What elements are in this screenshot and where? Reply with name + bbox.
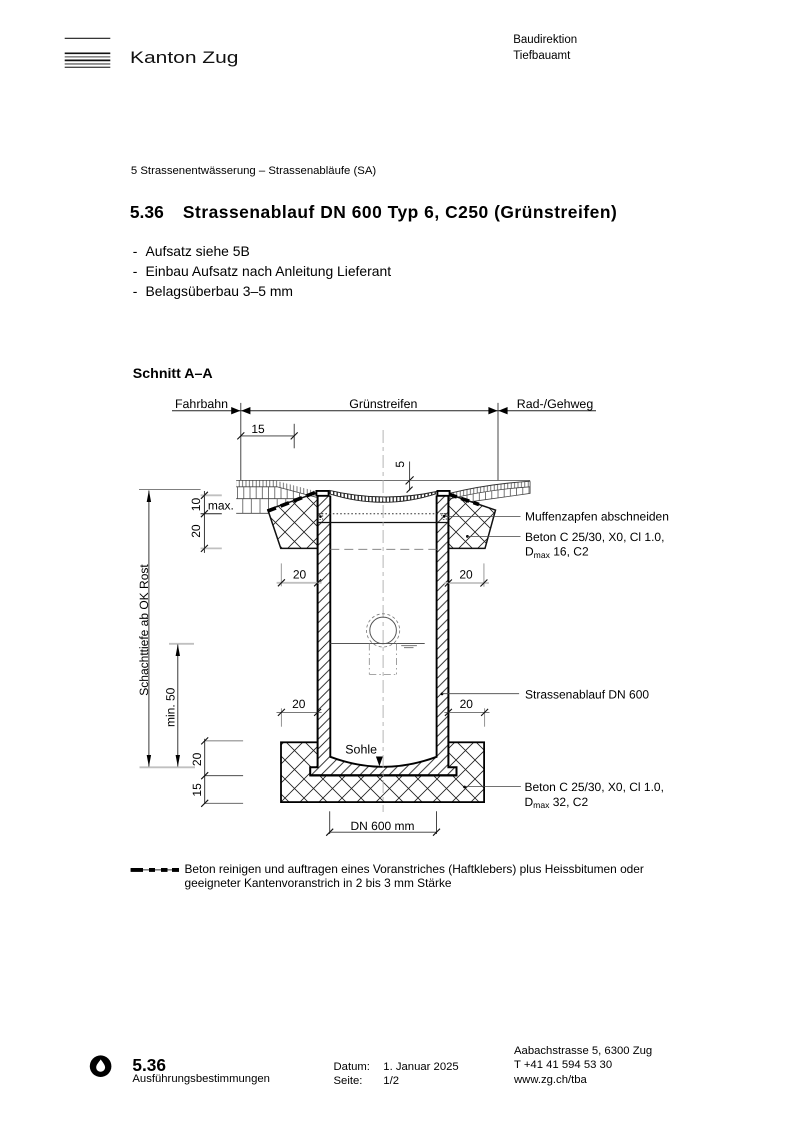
svg-text:Dmax 16, C2: Dmax 16, C2 [525, 545, 589, 560]
svg-text:Beton C 25/30, X0, Cl 1.0,: Beton C 25/30, X0, Cl 1.0, [525, 780, 664, 794]
svg-text:20: 20 [189, 524, 203, 538]
svg-text:DN 600 mm: DN 600 mm [350, 819, 414, 833]
svg-text:min. 50: min. 50 [164, 687, 178, 727]
svg-text:20: 20 [460, 697, 474, 711]
svg-text:15: 15 [190, 783, 204, 797]
svg-text:Dmax 32, C2: Dmax 32, C2 [525, 795, 589, 810]
svg-text:Beton C 25/30, X0, Cl 1.0,: Beton C 25/30, X0, Cl 1.0, [525, 530, 664, 544]
svg-text:20: 20 [292, 697, 306, 711]
svg-text:20: 20 [190, 752, 204, 766]
svg-text:Grünstreifen: Grünstreifen [349, 397, 417, 411]
svg-text:20: 20 [459, 567, 473, 581]
svg-text:Schachttiefe ab OK Rost: Schachttiefe ab OK Rost [137, 564, 151, 696]
svg-text:10: 10 [189, 498, 203, 512]
svg-text:20: 20 [293, 567, 307, 581]
svg-text:Muffenzapfen abschneiden: Muffenzapfen abschneiden [525, 510, 669, 524]
svg-text:max.: max. [208, 498, 234, 512]
svg-text:Fahrbahn: Fahrbahn [175, 397, 228, 411]
svg-text:15: 15 [251, 422, 265, 436]
svg-text:5: 5 [393, 461, 407, 468]
svg-text:Strassenablauf DN 600: Strassenablauf DN 600 [525, 687, 649, 701]
svg-text:Rad-/Gehweg: Rad-/Gehweg [517, 397, 594, 411]
svg-text:Sohle: Sohle [345, 742, 377, 756]
